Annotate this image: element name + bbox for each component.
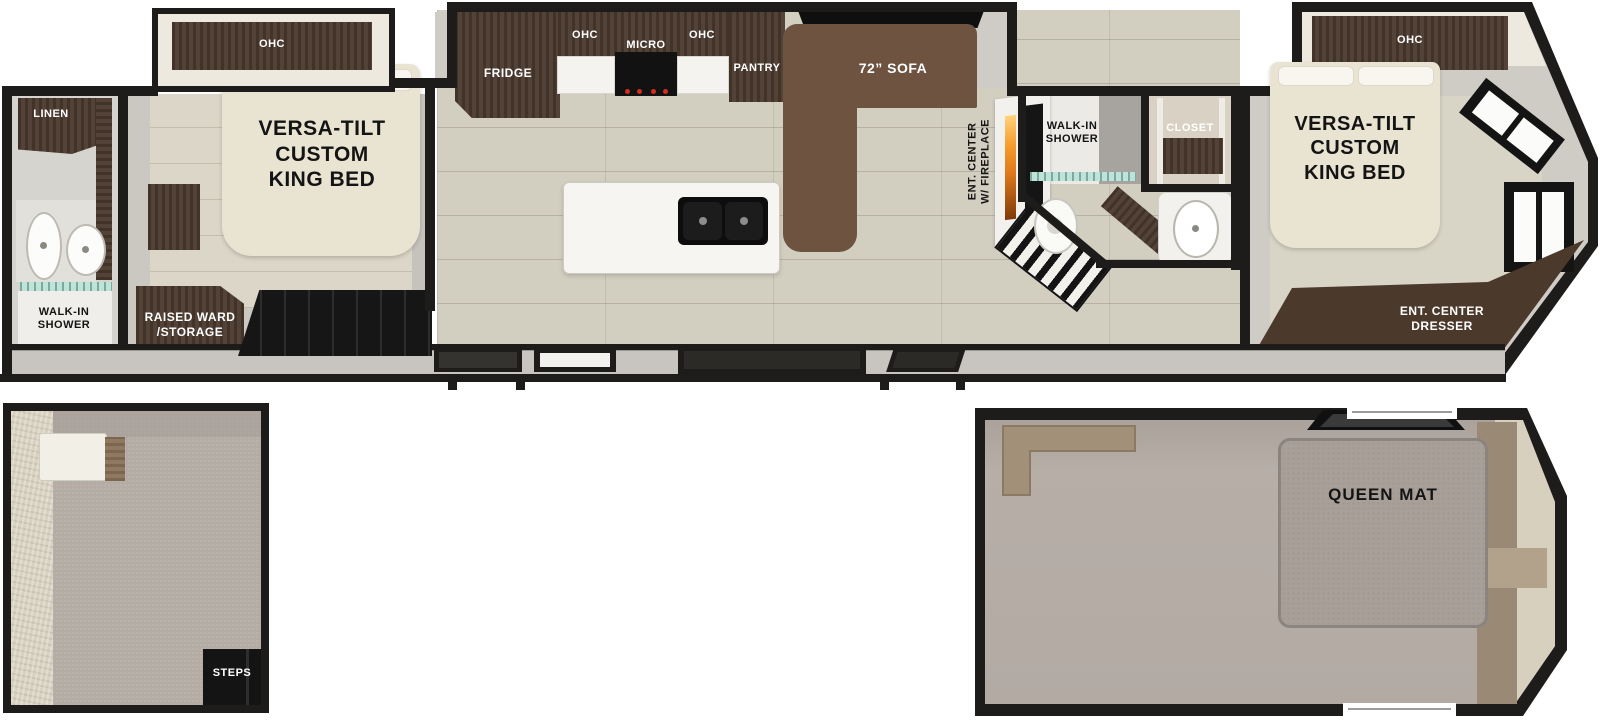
wall-top-right-run [1007, 86, 1250, 96]
wall-kitchen-top [447, 2, 1017, 12]
wall-closet-bottom [1141, 184, 1241, 192]
wall-closet-bedroom [1231, 94, 1241, 270]
sink-left-1 [26, 212, 62, 280]
wall-bottom-outer-line [0, 374, 1506, 382]
shower-glass-left [20, 282, 112, 291]
loft-bottom-window-line [1348, 708, 1451, 710]
entry-door-screen [534, 348, 616, 372]
wall-kitchen-top-right-post [1007, 2, 1017, 94]
stabilizer-foot [880, 381, 889, 390]
entry-opening-3 [886, 348, 966, 372]
raised-ward-storage-label: RAISED WARD /STORAGE [140, 310, 240, 339]
sink-drain [1192, 225, 1199, 232]
wall-bath-left-bedroom [118, 94, 128, 348]
king-bed-right-label: VERSA-TILT CUSTOM KING BED [1275, 112, 1435, 185]
king-bed-left-label: VERSA-TILT CUSTOM KING BED [232, 116, 412, 193]
wall-kitchen-top-left-post [447, 2, 457, 88]
loft-left-cabinet-end [105, 437, 125, 481]
linen-cabinet [18, 98, 108, 154]
fridge [455, 12, 560, 118]
walk-in-shower-left-label: WALK-IN SHOWER [14, 306, 114, 333]
dresser-label: ENT. CENTER DRESSER [1382, 304, 1502, 333]
vanity-sink-bowl [1173, 200, 1219, 258]
rv-floorplan-diagram: LINEN WALK-IN SHOWER OHC VERSA-TILT CUST… [0, 0, 1600, 722]
pillow [1358, 66, 1434, 86]
shower-glass-right [1030, 172, 1136, 181]
queen-mat: QUEEN MAT [1278, 438, 1488, 628]
ohc-left-label: OHC [172, 38, 372, 51]
opening-inset [439, 352, 517, 368]
bedroom-left-steps [238, 290, 432, 356]
faucet [699, 217, 707, 225]
walk-in-shower-right-label: WALK-IN SHOWER [1028, 120, 1116, 147]
entry-opening-1 [434, 348, 522, 372]
loft-right: QUEEN MAT [975, 400, 1600, 722]
main-floorplan: LINEN WALK-IN SHOWER OHC VERSA-TILT CUST… [0, 0, 1600, 395]
sink-drain [82, 246, 89, 253]
opening-inset [892, 352, 959, 368]
vanity-sink-unit [1158, 192, 1232, 264]
wall-shower-right-left [1018, 94, 1026, 202]
loft-left: STEPS [3, 403, 269, 713]
stabilizer-foot [448, 381, 457, 390]
burner-knob [651, 89, 656, 94]
ohc-right-label: OHC [1312, 34, 1508, 47]
sofa-chaise-section [783, 96, 857, 252]
pillow [1278, 66, 1354, 86]
queen-mat-label: QUEEN MAT [1281, 485, 1485, 506]
wall-top-left [2, 86, 158, 96]
stabilizer-foot [516, 381, 525, 390]
loft-steps-box: STEPS [203, 649, 261, 705]
burner-knob [637, 89, 642, 94]
closet-shelf [1163, 138, 1223, 174]
loft-left-cabinet [39, 433, 107, 481]
wall-left-end [2, 86, 12, 378]
wall-shower-closet [1141, 94, 1149, 192]
kitchen-counter-2 [677, 56, 729, 94]
sink-drain [40, 242, 47, 249]
ohc-kitchen-right-label: OHC [676, 29, 728, 42]
stabilizer-foot [956, 381, 965, 390]
burner-knob [625, 89, 630, 94]
wall-bedroom-left-kitchen [425, 86, 435, 311]
pantry-label: PANTRY [725, 62, 789, 75]
wall-bath-right-bottom [1096, 260, 1241, 268]
sink-left-2 [66, 224, 106, 276]
micro-label: MICRO [608, 39, 684, 52]
kitchen-counter-1 [557, 56, 615, 94]
pantry-cabinet [729, 12, 785, 102]
loft-top-window-line [1352, 411, 1452, 413]
faucet [740, 217, 748, 225]
fridge-label: FRIDGE [458, 66, 558, 81]
bedroom-left-slideout: OHC [152, 8, 395, 92]
entry-opening-2 [678, 346, 866, 374]
opening-inset [540, 353, 610, 367]
stove-range [615, 52, 677, 96]
burner-knob [663, 89, 668, 94]
living-right-wall-gray [977, 12, 1007, 88]
sofa-label: 72” SOFA [818, 60, 968, 77]
ent-center-label: ENT. CENTER W/ FIREPLACE [967, 101, 994, 221]
closet [1149, 94, 1231, 192]
linen-label: LINEN [20, 108, 82, 121]
closet-label: CLOSET [1152, 122, 1228, 135]
bedroom-left-bench [148, 184, 200, 250]
steps-label: STEPS [203, 667, 261, 680]
fireplace-flame [1005, 115, 1016, 220]
ohc-kitchen-left-label: OHC [560, 29, 610, 42]
island-double-sink [678, 197, 768, 245]
opening-inset [684, 351, 860, 369]
